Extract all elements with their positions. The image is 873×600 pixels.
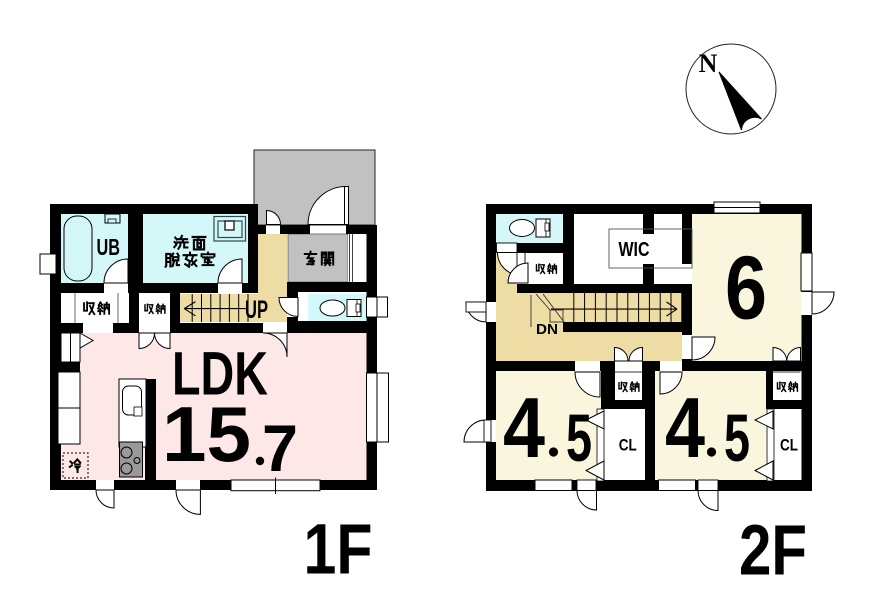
svg-text:5: 5 (724, 401, 750, 476)
svg-text:UP: UP (245, 296, 268, 324)
svg-text:UB: UB (97, 234, 121, 260)
svg-text:1F: 1F (304, 511, 373, 590)
svg-text:4: 4 (665, 381, 705, 476)
svg-text:DN: DN (536, 321, 558, 338)
svg-text:WIC: WIC (619, 239, 650, 261)
svg-text:CL: CL (780, 437, 798, 455)
svg-text:7: 7 (262, 411, 298, 485)
svg-text:6: 6 (725, 239, 767, 339)
svg-text:15: 15 (162, 390, 251, 478)
svg-text:4: 4 (503, 381, 545, 476)
svg-text:2F: 2F (739, 512, 807, 591)
svg-text:CL: CL (619, 437, 637, 455)
svg-text:5: 5 (566, 401, 592, 476)
svg-text:N: N (699, 49, 718, 78)
